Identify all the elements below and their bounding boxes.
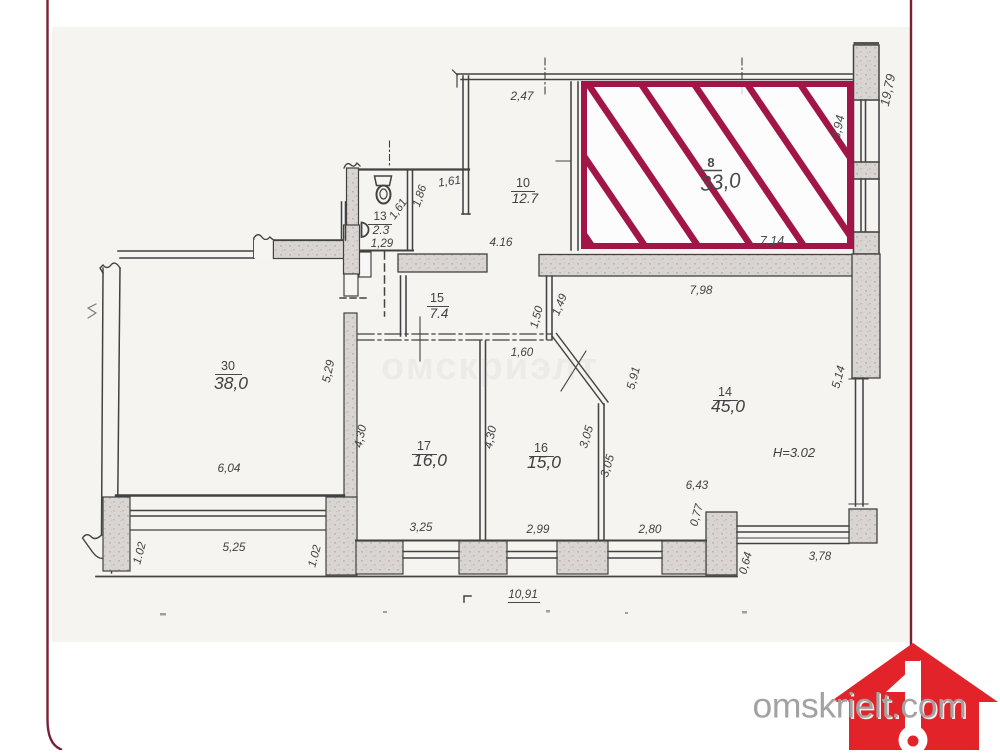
svg-text:8: 8 (707, 155, 714, 170)
svg-text:7,98: 7,98 (690, 283, 713, 297)
svg-text:H=3.02: H=3.02 (773, 445, 816, 460)
svg-text:2,47: 2,47 (510, 89, 534, 103)
svg-text:15,0: 15,0 (527, 452, 561, 472)
svg-text:2.3: 2.3 (372, 223, 390, 237)
svg-text:3,25: 3,25 (410, 520, 433, 534)
svg-text:2,99: 2,99 (526, 522, 550, 536)
svg-text:10: 10 (516, 176, 530, 190)
svg-text:15: 15 (430, 291, 444, 305)
svg-text:45,0: 45,0 (711, 396, 745, 416)
svg-text:16,0: 16,0 (413, 450, 447, 470)
svg-text:4.16: 4.16 (490, 235, 513, 249)
svg-text:omskrielt.com: omskrielt.com (753, 686, 967, 726)
svg-text:7,14: 7,14 (760, 234, 784, 248)
svg-text:33,0: 33,0 (699, 169, 742, 196)
svg-text:13: 13 (373, 209, 387, 223)
svg-text:6,43: 6,43 (686, 480, 709, 492)
svg-text:3,78: 3,78 (809, 551, 832, 563)
svg-text:12.7: 12.7 (512, 191, 539, 206)
svg-text:10,91: 10,91 (508, 587, 538, 601)
svg-text:6,04: 6,04 (218, 461, 241, 475)
svg-text:омскриэлт: омскриэлт (381, 346, 599, 388)
svg-text:38,0: 38,0 (214, 373, 248, 393)
svg-text:2,80: 2,80 (638, 522, 662, 536)
svg-text:5,25: 5,25 (223, 540, 246, 554)
svg-text:1,29: 1,29 (371, 238, 394, 250)
svg-text:7.4: 7.4 (430, 306, 449, 321)
svg-text:30: 30 (221, 359, 235, 373)
